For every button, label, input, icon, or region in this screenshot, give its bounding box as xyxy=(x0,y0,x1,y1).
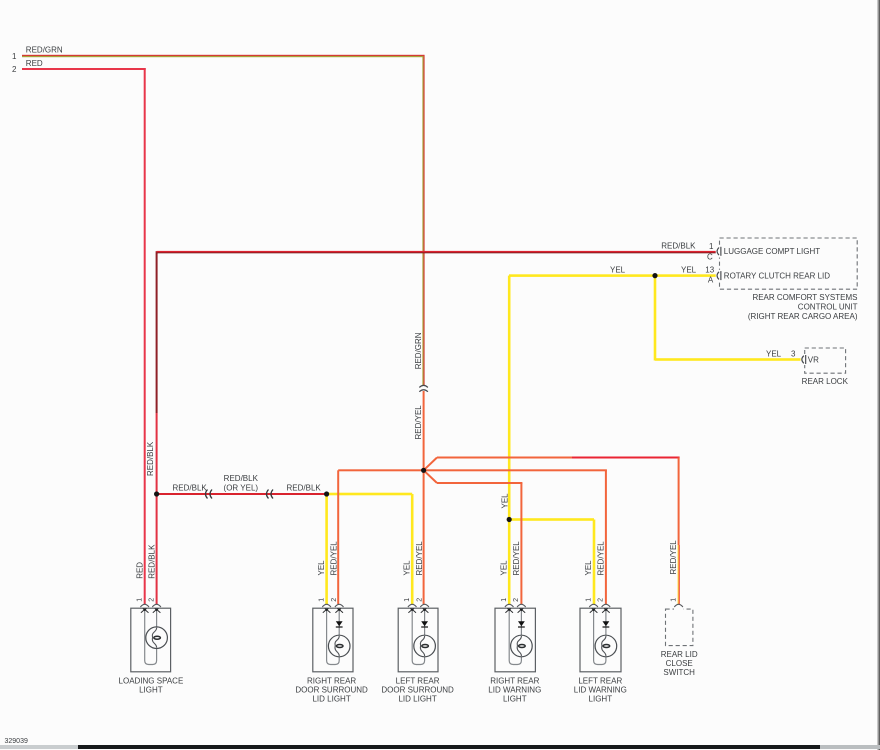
svg-text:RED: RED xyxy=(135,562,144,579)
svg-text:LEFT REAR: LEFT REAR xyxy=(396,676,440,685)
svg-text:1: 1 xyxy=(404,598,411,602)
svg-text:1: 1 xyxy=(501,598,508,602)
svg-text:RED/YEL: RED/YEL xyxy=(330,541,339,576)
svg-text:YEL: YEL xyxy=(584,560,593,576)
svg-text:YEL: YEL xyxy=(500,493,509,509)
svg-text:2: 2 xyxy=(598,598,605,602)
svg-text:1: 1 xyxy=(670,598,677,602)
svg-text:RED: RED xyxy=(26,59,43,68)
svg-text:1: 1 xyxy=(12,52,17,61)
svg-text:RED/YEL: RED/YEL xyxy=(596,541,605,576)
svg-text:SWITCH: SWITCH xyxy=(663,668,695,677)
svg-text:DOOR SURROUND: DOOR SURROUND xyxy=(381,685,454,694)
svg-text:2: 2 xyxy=(513,598,520,602)
svg-text:YEL: YEL xyxy=(766,350,782,359)
svg-text:YEL: YEL xyxy=(610,266,626,275)
svg-text:2: 2 xyxy=(148,598,155,602)
svg-text:RED/BLK: RED/BLK xyxy=(147,544,156,579)
svg-text:YEL: YEL xyxy=(681,266,697,275)
svg-text:RED/GRN: RED/GRN xyxy=(414,332,423,369)
svg-text:13: 13 xyxy=(705,265,714,274)
svg-text:LOADING SPACE: LOADING SPACE xyxy=(119,676,184,685)
svg-text:RED/YEL: RED/YEL xyxy=(414,405,423,440)
svg-text:YEL: YEL xyxy=(403,560,412,576)
svg-text:LID WARNING: LID WARNING xyxy=(488,685,541,694)
svg-text:2: 2 xyxy=(331,598,338,602)
svg-text:RED/BLK: RED/BLK xyxy=(287,483,322,492)
svg-text:A: A xyxy=(708,275,714,284)
svg-text:(RIGHT REAR CARGO AREA): (RIGHT REAR CARGO AREA) xyxy=(748,312,858,321)
svg-text:2: 2 xyxy=(12,65,17,74)
svg-text:329039: 329039 xyxy=(5,738,28,745)
svg-text:REAR LOCK: REAR LOCK xyxy=(802,377,849,386)
svg-text:3: 3 xyxy=(791,350,796,359)
svg-text:(OR YEL): (OR YEL) xyxy=(224,483,259,492)
svg-text:RED/YEL: RED/YEL xyxy=(512,541,521,576)
svg-text:RIGHT REAR: RIGHT REAR xyxy=(307,676,356,685)
svg-text:YEL: YEL xyxy=(500,560,509,576)
svg-text:REAR COMFORT SYSTEMS: REAR COMFORT SYSTEMS xyxy=(752,293,857,302)
svg-text:LID LIGHT: LID LIGHT xyxy=(398,694,436,703)
svg-text:2: 2 xyxy=(416,598,423,602)
svg-text:YEL: YEL xyxy=(317,560,326,576)
svg-text:LIGHT: LIGHT xyxy=(589,694,613,703)
svg-text:LIGHT: LIGHT xyxy=(503,694,527,703)
svg-text:1: 1 xyxy=(137,598,144,602)
svg-text:RED/BLK: RED/BLK xyxy=(146,441,155,476)
svg-text:RED/BLK: RED/BLK xyxy=(224,474,259,483)
svg-text:LID WARNING: LID WARNING xyxy=(574,685,627,694)
svg-text:1: 1 xyxy=(318,598,325,602)
svg-text:LID LIGHT: LID LIGHT xyxy=(312,694,350,703)
svg-text:RED/YEL: RED/YEL xyxy=(669,540,678,575)
svg-text:REAR LID: REAR LID xyxy=(661,650,698,659)
svg-text:LIGHT: LIGHT xyxy=(139,685,163,694)
svg-text:LUGGAGE COMPT LIGHT: LUGGAGE COMPT LIGHT xyxy=(724,247,820,256)
svg-text:DOOR SURROUND: DOOR SURROUND xyxy=(295,685,368,694)
svg-text:RED/YEL: RED/YEL xyxy=(415,541,424,576)
svg-text:RED/GRN: RED/GRN xyxy=(26,46,63,55)
svg-text:1: 1 xyxy=(585,598,592,602)
svg-text:VR: VR xyxy=(808,355,819,364)
svg-text:ROTARY CLUTCH REAR LID: ROTARY CLUTCH REAR LID xyxy=(724,271,830,280)
svg-text:CONTROL UNIT: CONTROL UNIT xyxy=(798,303,858,312)
svg-text:C: C xyxy=(707,252,713,261)
svg-text:LEFT REAR: LEFT REAR xyxy=(578,676,622,685)
svg-text:CLOSE: CLOSE xyxy=(666,659,693,668)
svg-text:RIGHT REAR: RIGHT REAR xyxy=(490,676,539,685)
svg-text:RED/BLK: RED/BLK xyxy=(661,241,696,250)
svg-text:RED/BLK: RED/BLK xyxy=(173,483,208,492)
svg-text:1: 1 xyxy=(709,242,714,251)
